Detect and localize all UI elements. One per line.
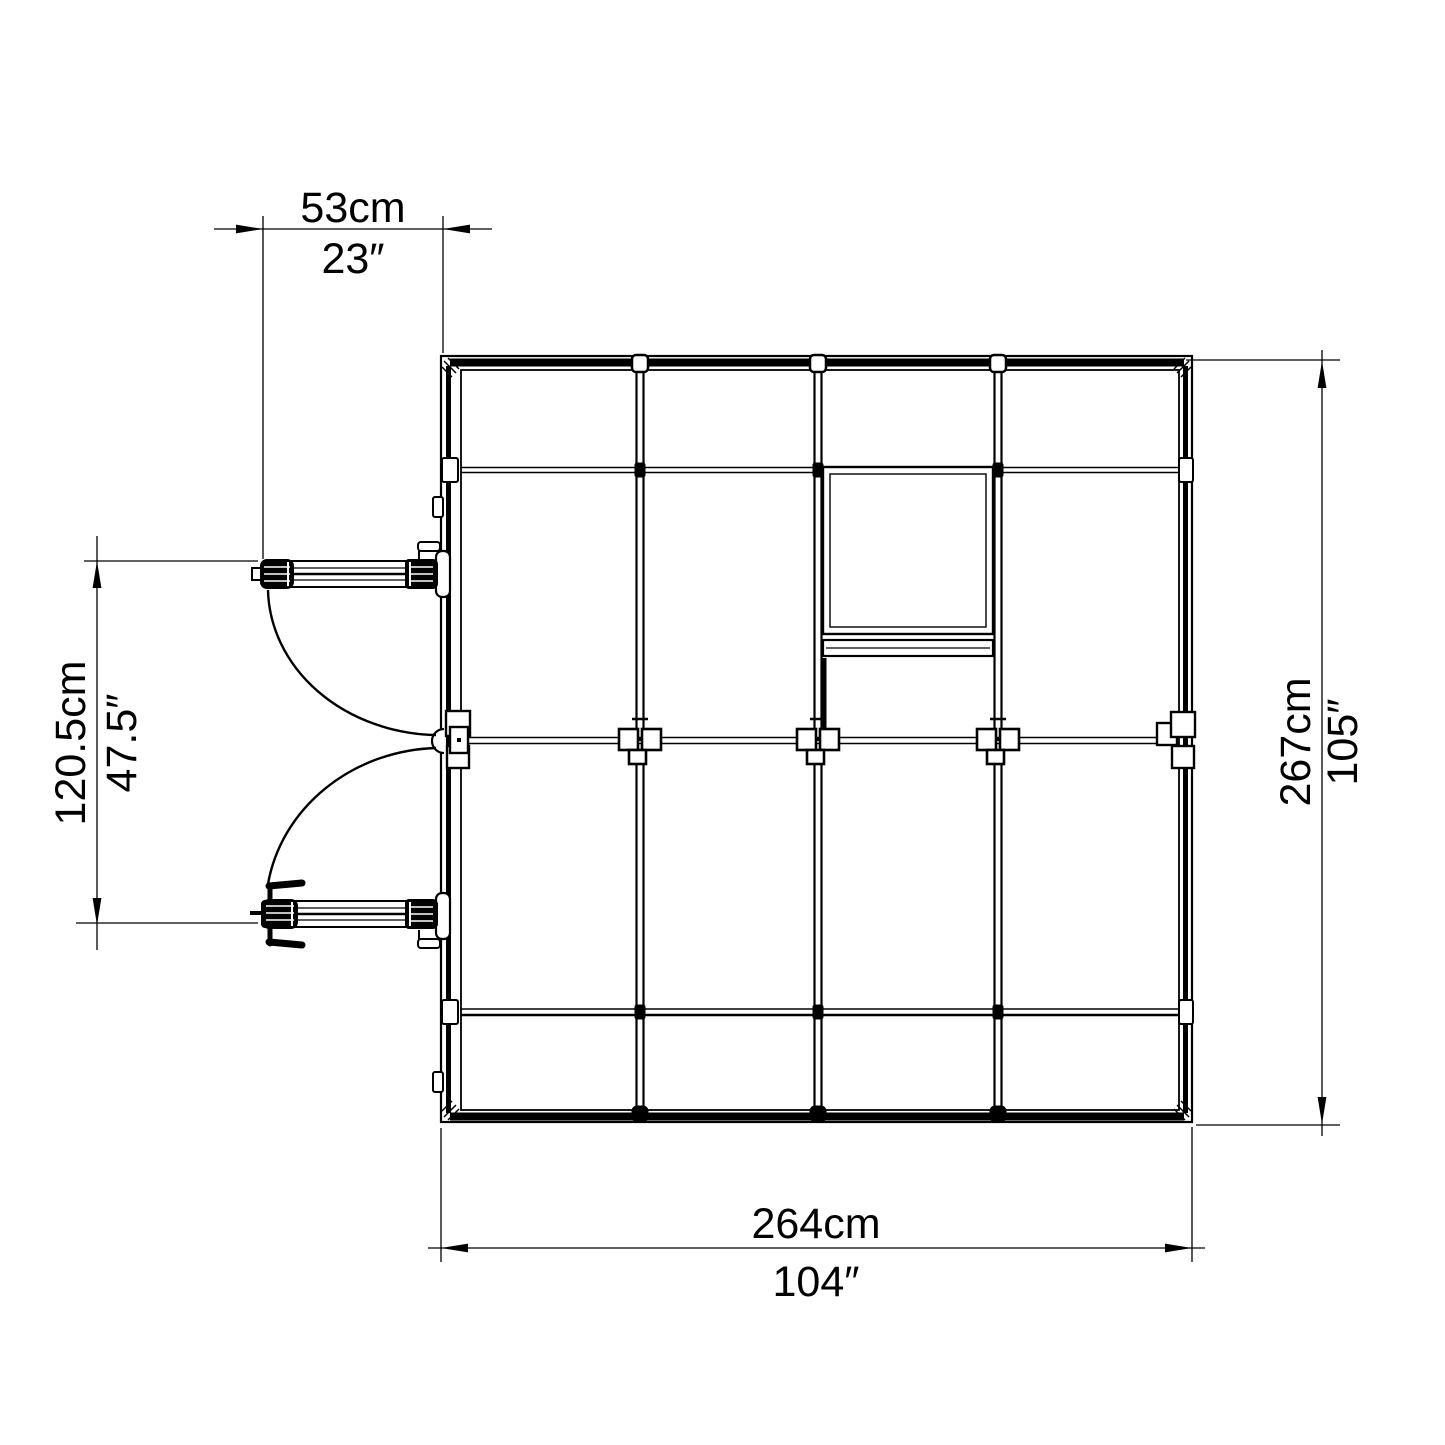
wall-bracket: [433, 497, 443, 517]
dim-right-metric-label: 267cm: [1272, 677, 1320, 806]
door-bottom-hinge-block: [405, 899, 437, 929]
roof-vent-panel: [823, 467, 993, 634]
technical-drawing-page: 53cm 23″ 120.5cm 47.5″ 267cm 105″ 264cm …: [0, 0, 1445, 1445]
dim-bottom-metric-label: 264cm: [751, 1200, 880, 1248]
door-bottom-wall-bracket: [418, 939, 440, 948]
dim-top-metric-label: 53cm: [300, 184, 405, 232]
door-top-wall-bracket: [418, 542, 440, 551]
dim-left-metric-label: 120.5cm: [47, 661, 95, 826]
dim-top-imperial-label: 23″: [321, 235, 384, 283]
dim-bottom-imperial-label: 104″: [773, 1258, 860, 1306]
wall-bracket: [433, 1072, 443, 1092]
door-top-latch-nub: [252, 568, 261, 580]
door-bottom-hinge-plate: [436, 893, 450, 939]
door-top-hinge-block: [405, 559, 437, 589]
door-top-hinge-plate: [436, 551, 450, 597]
dim-left-imperial-label: 47.5″: [98, 694, 146, 793]
greenhouse-top-view-diagram: 53cm 23″ 120.5cm 47.5″ 267cm 105″ 264cm …: [0, 0, 1445, 1445]
dim-right-imperial-label: 105″: [1319, 699, 1367, 786]
background: [0, 0, 1445, 1445]
